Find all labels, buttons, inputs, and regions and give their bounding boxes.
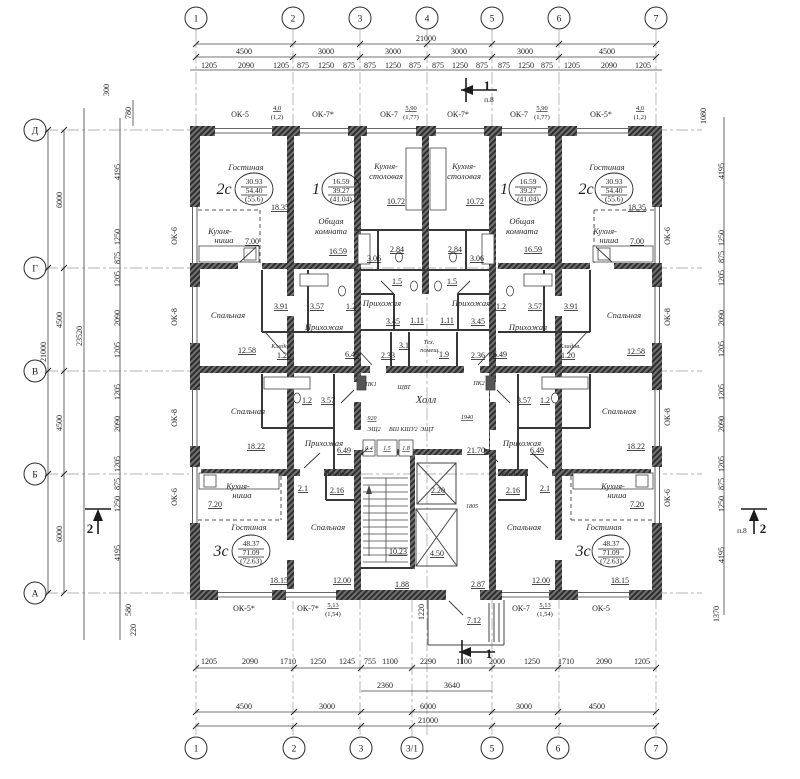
svg-text:7: 7 — [654, 15, 659, 25]
dim-label: 875 — [432, 61, 444, 70]
svg-text:48.37: 48.37 — [243, 539, 260, 548]
area-label: 4.50 — [430, 549, 444, 558]
dim-label: 1205 — [635, 61, 651, 70]
svg-text:3/1: 3/1 — [406, 745, 418, 755]
section-number: 2 — [87, 521, 94, 536]
dim-label: 2090 — [238, 61, 254, 70]
svg-text:Б: Б — [32, 471, 37, 481]
room-label: Общая — [509, 216, 534, 226]
svg-text:2: 2 — [291, 15, 296, 25]
dim-label: 875 — [541, 61, 553, 70]
apartment-badge: 16.5939.27(41.04)1 — [312, 173, 360, 205]
area-label: 3.91 — [274, 302, 288, 311]
dim-label: 2360 — [377, 681, 393, 690]
dim-label: 2090 — [113, 310, 122, 326]
dim-label: 3640 — [444, 681, 460, 690]
svg-text:(41.04): (41.04) — [330, 195, 352, 204]
area-label: 3.57 — [528, 302, 542, 311]
area-label: 1.5 — [392, 277, 402, 286]
shaft-label: ЭЩТ — [420, 427, 434, 433]
window-label: 5,13 — [327, 602, 338, 609]
svg-text:(55.6): (55.6) — [245, 195, 264, 204]
svg-text:1: 1 — [194, 15, 199, 25]
dim-label: 875 — [717, 478, 726, 490]
room-label: Кладов. — [270, 343, 293, 350]
svg-text:16.59: 16.59 — [333, 177, 350, 186]
dim-label: 3000 — [385, 47, 401, 56]
window-label: 5,90 — [405, 105, 416, 112]
svg-text:1: 1 — [500, 181, 508, 198]
area-label: 6.49 — [493, 350, 507, 359]
grid-bubble: 5 — [481, 7, 503, 29]
room-label: Спальная — [231, 406, 265, 416]
area-label: 18.22 — [247, 442, 265, 451]
dim-label: 23520 — [75, 326, 84, 346]
window-label: ОК-7 — [510, 110, 528, 119]
area-label: 12.58 — [627, 347, 645, 356]
dim-label: 875 — [476, 61, 488, 70]
grid-bubble: Г — [24, 257, 46, 279]
dim-label: 4500 — [55, 312, 64, 328]
area-label: 1.88 — [395, 580, 409, 589]
area-label: 3.57 — [310, 302, 324, 311]
grid-bubble: 1 — [185, 737, 207, 759]
dim-label: 1250 — [518, 61, 534, 70]
grid-bubble: 4 — [416, 7, 438, 29]
room-label: Кладов. — [326, 471, 349, 478]
area-label: 1.2 — [302, 396, 312, 405]
room-label: ниша — [232, 490, 251, 500]
svg-text:2с: 2с — [216, 181, 231, 198]
area-label: 2.16 — [330, 486, 344, 495]
window-label: (1,2) — [271, 114, 283, 121]
window-label: ОК-5 — [592, 604, 610, 613]
shaft-label: ПК2 — [472, 381, 484, 387]
dim-label: 300 — [102, 84, 111, 96]
dim-label: 4195 — [717, 163, 726, 179]
area-label: 18.15 — [611, 576, 629, 585]
area-label: 16.59 — [329, 247, 347, 256]
svg-text:(72.63): (72.63) — [240, 557, 262, 566]
window-label: ОК-7 — [512, 604, 530, 613]
room-label: Спальная — [602, 406, 636, 416]
area-label: 18.22 — [627, 442, 645, 451]
window-label: ОК-8 — [170, 409, 179, 427]
dim-label: 4500 — [599, 47, 615, 56]
grid-bubble: А — [24, 582, 46, 604]
dim-label: 4500 — [236, 702, 252, 711]
shaft-label: ЩВТ — [397, 385, 412, 391]
area-label: 16.59 — [524, 245, 542, 254]
area-label: 6.49 — [345, 350, 359, 359]
area-label: 21.70 — [467, 446, 485, 455]
dim-label: 6000 — [55, 526, 64, 542]
window-label: ОК-5 — [231, 110, 249, 119]
area-label: 1.20 — [277, 351, 291, 360]
dim-label: 1205 — [113, 384, 122, 400]
area-label: 1.11 — [410, 316, 424, 325]
room-label: Тех. — [424, 339, 435, 346]
window-label: ОК-6 — [663, 227, 672, 245]
dim-label: 6000 — [55, 192, 64, 208]
area-label: 2.84 — [390, 245, 404, 254]
section-number: п.8 — [484, 95, 494, 104]
area-label: 7.12 — [467, 616, 481, 625]
window-label: ОК-6 — [663, 489, 672, 507]
room-label: столовая — [447, 171, 481, 181]
shaft-label: ВШ — [389, 427, 400, 433]
grid-bubble: 5 — [481, 737, 503, 759]
dim-label: 875 — [297, 61, 309, 70]
window-label: 4,0 — [273, 105, 281, 112]
dim-label: 4195 — [717, 547, 726, 563]
dim-label: 1100 — [456, 657, 472, 666]
dim-label: 875 — [717, 251, 726, 263]
svg-text:30.93: 30.93 — [606, 177, 623, 186]
dim-label: 6000 — [420, 702, 436, 711]
dim-label: 1250 — [113, 496, 122, 512]
svg-text:4: 4 — [425, 15, 430, 25]
svg-text:5: 5 — [490, 745, 495, 755]
window-label: ОК-7* — [312, 110, 334, 119]
grid-bubble: 2 — [282, 7, 304, 29]
section-number: 1 — [484, 78, 491, 93]
area-label: 7.20 — [208, 500, 222, 509]
section-number: 1 — [486, 646, 493, 661]
window-label: (1,77) — [534, 114, 550, 121]
dim-label: 1220 — [417, 604, 426, 620]
window-label: ОК-7* — [447, 110, 469, 119]
shaft-label: 0.4 — [365, 445, 373, 452]
section-number: п.8 — [737, 526, 747, 535]
dim-label: 1250 — [717, 496, 726, 512]
dim-label: 1205 — [717, 384, 726, 400]
svg-text:А: А — [32, 590, 39, 600]
svg-text:6: 6 — [556, 745, 561, 755]
dim-label: 875 — [113, 252, 122, 264]
room-label: Кухня- — [451, 161, 476, 171]
area-label: 6.49 — [337, 446, 351, 455]
shaft-label: 1.5 — [383, 446, 391, 452]
room-label: Гостиная — [588, 162, 624, 172]
area-label: 12.00 — [333, 576, 351, 585]
grid-bubble: 7 — [645, 7, 667, 29]
window-label: ОК-8 — [663, 308, 672, 326]
window-label: (1,2) — [634, 114, 646, 121]
dim-label: 1250 — [113, 229, 122, 245]
area-label: 2.87 — [471, 580, 485, 589]
area-label: 3.45 — [471, 317, 485, 326]
room-label: Холл — [415, 395, 437, 406]
dim-label: 21000 — [418, 716, 438, 725]
dim-label: 21000 — [39, 342, 48, 362]
grid-bubble: Д — [24, 119, 46, 141]
grid-bubble: 1 — [185, 7, 207, 29]
dim-label: 3000 — [451, 47, 467, 56]
dim-label: 2090 — [596, 657, 612, 666]
area-label: 3.57 — [517, 396, 531, 405]
window-label: ОК-5* — [590, 110, 612, 119]
room-label: Гостиная — [585, 522, 621, 532]
svg-text:7: 7 — [654, 745, 659, 755]
window-label: 5,90 — [536, 105, 547, 112]
dim-label: 3000 — [517, 47, 533, 56]
svg-text:3: 3 — [359, 745, 364, 755]
dim-label: 1205 — [634, 657, 650, 666]
room-label: Прихожая — [451, 298, 490, 308]
room-label: Гостиная — [227, 162, 263, 172]
dim-label: 1205 — [113, 456, 122, 472]
grid-bubble: 2 — [283, 737, 305, 759]
dim-label: 4500 — [55, 415, 64, 431]
area-label: 7.00 — [245, 237, 259, 246]
dim-label: 1205 — [564, 61, 580, 70]
room-label: Кладов. — [558, 343, 581, 350]
room-label: Гостиная — [230, 522, 266, 532]
apartment-badge: 30.9354.40(55.6)2с — [578, 173, 633, 205]
section-number: 2 — [760, 521, 767, 536]
area-label: 3.57 — [321, 396, 335, 405]
dim-label: 1250 — [452, 61, 468, 70]
area-label: 18.35 — [628, 203, 646, 212]
svg-text:(55.6): (55.6) — [605, 195, 624, 204]
shaft-label: ПК1 — [364, 382, 376, 388]
svg-text:30.93: 30.93 — [246, 177, 263, 186]
room-label: Спальная — [507, 522, 541, 532]
area-label: 1.2 — [496, 302, 506, 311]
dim-label: 4195 — [113, 545, 122, 561]
dim-label: 1245 — [339, 657, 355, 666]
window-label: 5,13 — [539, 602, 550, 609]
room-label: столовая — [369, 171, 403, 181]
window-label: ОК-7 — [380, 110, 398, 119]
area-label: 12.00 — [532, 576, 550, 585]
area-label: 1.2 — [540, 396, 550, 405]
dim-label: 1205 — [717, 270, 726, 286]
grid-bubble: 7 — [645, 737, 667, 759]
apartment-badge: 48.3771.09(72.63)3с — [212, 535, 270, 567]
window-label: 4,0 — [636, 105, 644, 112]
grid-bubble: Б — [24, 463, 46, 485]
svg-text:48.37: 48.37 — [603, 539, 620, 548]
svg-text:Г: Г — [32, 265, 38, 275]
dim-label: 875 — [113, 478, 122, 490]
window-label: ОК-7* — [297, 604, 319, 613]
dim-label: 1205 — [717, 456, 726, 472]
area-label: 18.35 — [271, 203, 289, 212]
dim-label: 220 — [129, 624, 138, 636]
svg-text:16.59: 16.59 — [520, 177, 537, 186]
area-label: 1.11 — [440, 316, 454, 325]
svg-text:3с: 3с — [212, 543, 228, 560]
apartment-badge: 16.5939.27(41.04)1 — [500, 173, 547, 205]
dim-label: 1205 — [201, 61, 217, 70]
grid-bubble: 6 — [547, 737, 569, 759]
svg-text:2: 2 — [292, 745, 297, 755]
room-label: ниша — [599, 235, 618, 245]
room-label: помещ. — [420, 347, 440, 354]
room-label: ниша — [214, 235, 233, 245]
svg-text:(72.63): (72.63) — [600, 557, 622, 566]
room-label: Прихожая — [508, 322, 547, 332]
dim-label: 3000 — [318, 47, 334, 56]
dim-label: 1205 — [717, 341, 726, 357]
dim-label: 4500 — [236, 47, 252, 56]
dim-label: 21000 — [416, 34, 436, 43]
grid-bubble: 6 — [548, 7, 570, 29]
dim-label: 1205 — [201, 657, 217, 666]
area-label: 2.84 — [448, 245, 462, 254]
window-label: ОК-6 — [170, 227, 179, 245]
area-label: 2.33 — [381, 351, 395, 360]
dim-label: 1250 — [385, 61, 401, 70]
shaft-label: 1940 — [461, 414, 473, 421]
area-label: 3.45 — [386, 317, 400, 326]
shaft-label: 920 — [368, 416, 377, 422]
area-label: 3.1 — [399, 341, 409, 350]
window-label: ОК-8 — [663, 408, 672, 426]
area-label: 18.15 — [270, 576, 288, 585]
area-label: 7.20 — [630, 500, 644, 509]
room-label: Спальная — [311, 522, 345, 532]
apartment-badge: 48.3771.09(72.63)3с — [574, 535, 630, 567]
dim-label: 580 — [124, 604, 133, 616]
dim-label: 1710 — [280, 657, 296, 666]
dim-label: 2090 — [717, 416, 726, 432]
shaft-label: КШУ2 — [399, 427, 417, 433]
room-label: Спальная — [211, 310, 245, 320]
floor-plan-drawing: 2100045003000300030003000450012052090120… — [0, 0, 800, 779]
svg-text:В: В — [32, 368, 38, 378]
dim-label: 1370 — [712, 606, 721, 622]
room-label: комната — [506, 226, 538, 236]
room-label: Кухня- — [373, 161, 398, 171]
dim-label: 875 — [409, 61, 421, 70]
dim-label: 875 — [343, 61, 355, 70]
dim-label: 1250 — [524, 657, 540, 666]
area-label: 12.58 — [238, 346, 256, 355]
room-label: Прихожая — [304, 322, 343, 332]
grid-bubble: В — [24, 360, 46, 382]
area-label: 2.1 — [540, 484, 550, 493]
area-label: 3.06 — [367, 254, 381, 263]
window-label: (1,54) — [537, 611, 553, 618]
area-label: 10.72 — [387, 197, 405, 206]
dim-label: 2090 — [717, 310, 726, 326]
dim-label: 3000 — [516, 702, 532, 711]
svg-text:3: 3 — [358, 15, 363, 25]
entrance-porch — [428, 600, 504, 645]
room-label: Прихожая — [362, 298, 401, 308]
window-label: (1,54) — [325, 611, 341, 618]
svg-text:2с: 2с — [578, 181, 593, 198]
grid-bubble: 3 — [349, 7, 371, 29]
grid-bubble: 3/1 — [401, 737, 423, 759]
dimension-lines — [48, 44, 724, 726]
dim-label: 1250 — [717, 230, 726, 246]
area-label: 1.9 — [439, 350, 449, 359]
shaft-label: 1805 — [466, 504, 478, 510]
window-label: ОК-8 — [170, 308, 179, 326]
dim-label: 1250 — [318, 61, 334, 70]
area-label: 7.00 — [630, 237, 644, 246]
area-label: 2.36 — [471, 351, 485, 360]
area-label: 10.23 — [389, 547, 407, 556]
window-label: ОК-6 — [170, 488, 179, 506]
svg-text:1: 1 — [312, 181, 320, 198]
dim-label: 875 — [364, 61, 376, 70]
svg-text:5: 5 — [490, 15, 495, 25]
window-label: ОК-5* — [233, 604, 255, 613]
dim-label: 2090 — [113, 416, 122, 432]
svg-text:3с: 3с — [574, 543, 590, 560]
room-label: комната — [315, 226, 347, 236]
area-label: 3.06 — [470, 254, 484, 263]
area-label: 2.20 — [431, 486, 445, 495]
room-label: ниша — [607, 490, 626, 500]
dim-label: 1205 — [113, 342, 122, 358]
area-label: 10.72 — [466, 197, 484, 206]
apartment-badge: 30.9354.40(55.6)2с — [216, 173, 273, 205]
area-label: 1.20 — [561, 351, 575, 360]
dim-label: 4500 — [589, 702, 605, 711]
room-label: Общая — [318, 216, 343, 226]
dim-label: 755 — [364, 657, 376, 666]
grid-bubble: 3 — [350, 737, 372, 759]
dim-label: 2090 — [242, 657, 258, 666]
area-label: 1.2 — [346, 302, 356, 311]
room-label: Кладов. — [500, 471, 523, 478]
area-label: 2.1 — [298, 484, 308, 493]
room-label: Спальная — [607, 310, 641, 320]
dim-label: 1710 — [558, 657, 574, 666]
svg-text:(41.04): (41.04) — [517, 195, 539, 204]
dim-label: 1100 — [382, 657, 398, 666]
shaft-label: 1.8 — [402, 446, 410, 452]
window-label: (1,77) — [403, 114, 419, 121]
dim-label: 1080 — [699, 108, 708, 124]
svg-text:Д: Д — [32, 127, 39, 137]
area-label: 2.16 — [506, 486, 520, 495]
dim-label: 3000 — [319, 702, 335, 711]
dim-label: 4195 — [113, 164, 122, 180]
dim-label: 780 — [124, 107, 133, 119]
svg-text:6: 6 — [557, 15, 562, 25]
area-label: 1.5 — [447, 277, 457, 286]
area-label: 6.49 — [530, 446, 544, 455]
svg-text:1: 1 — [194, 745, 199, 755]
dim-label: 875 — [498, 61, 510, 70]
shaft-label: ЭЩ2 — [367, 427, 380, 433]
area-label: 3.91 — [564, 302, 578, 311]
dim-label: 1250 — [310, 657, 326, 666]
dim-label: 1205 — [273, 61, 289, 70]
dim-label: 1205 — [113, 271, 122, 287]
dim-label: 2290 — [420, 657, 436, 666]
dim-label: 2090 — [601, 61, 617, 70]
